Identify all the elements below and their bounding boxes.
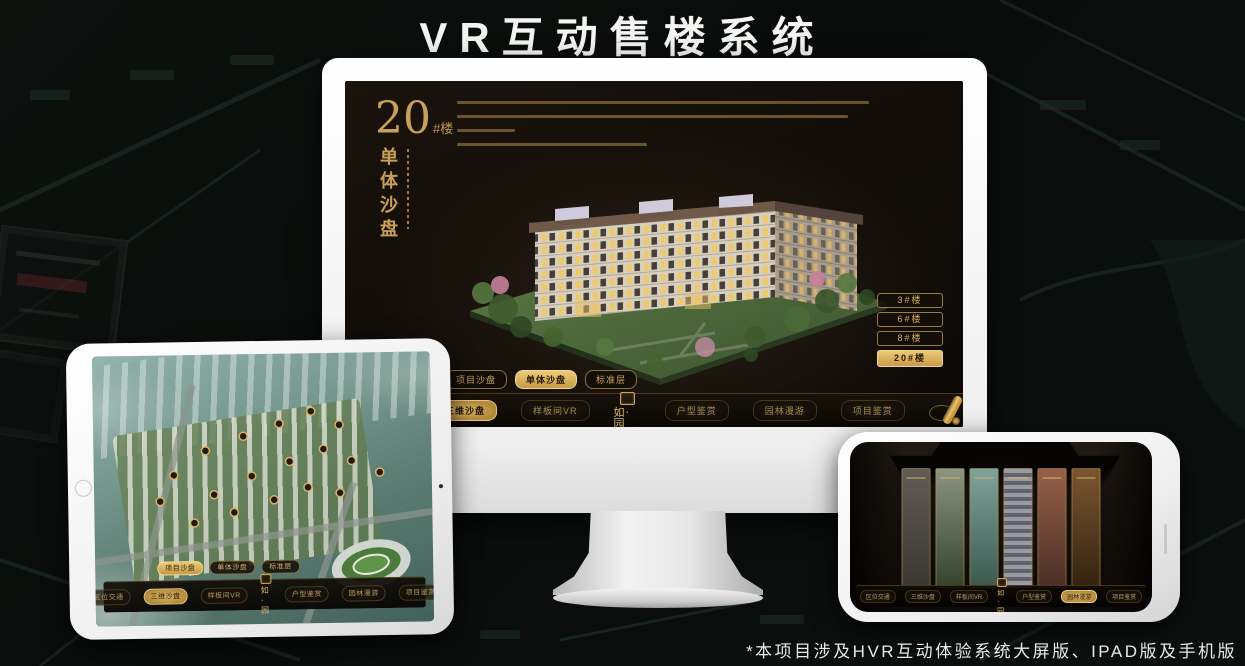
home-button[interactable]: [75, 480, 92, 497]
building-number: 20: [375, 93, 431, 144]
phone-screen: 区位交通 三维沙盘 样板间VR 如·园 户型鉴赏 园林漫游 项目鉴赏: [850, 442, 1152, 612]
tablet-logo[interactable]: 如·园: [260, 574, 272, 616]
seal-icon: [620, 392, 635, 405]
logo-text: 如·园: [261, 585, 272, 616]
tablet-tab-project-sandtable[interactable]: 项目沙盘: [157, 561, 203, 576]
tablet-tab-standard-floor[interactable]: 标准层: [261, 559, 300, 574]
logo-text: 如·园: [614, 407, 641, 427]
monitor-stand-base: [553, 588, 763, 608]
panel-card-elevation[interactable]: [1004, 468, 1033, 588]
description-paragraph: [457, 101, 869, 146]
nav-item-floorplans[interactable]: 户型鉴赏: [665, 400, 729, 421]
tablet-navbar: 区位交通 三维沙盘 样板间VR 如·园 户型鉴赏 园林漫游 项目鉴赏: [103, 576, 425, 612]
panel-card-interior[interactable]: [902, 468, 931, 588]
camera-dot: [439, 484, 443, 488]
nav-item-project-gallery[interactable]: 项目鉴赏: [841, 400, 905, 421]
tablet-nav-showroom-vr[interactable]: 样板间VR: [200, 587, 247, 604]
footnote: *本项目涉及HVR互动体验系统大屏版、IPAD版及手机版: [746, 637, 1237, 662]
page-title: VR互动售楼系统: [0, 4, 1245, 65]
tablet-sub-tabs: 项目沙盘 单体沙盘 标准层: [157, 559, 300, 575]
scroll-handle-icon[interactable]: [929, 397, 963, 425]
project-logo[interactable]: 如·园: [614, 392, 641, 427]
floor-button-6[interactable]: 6#楼: [877, 312, 943, 327]
building-render: [455, 151, 895, 386]
poster-stage: VR互动售楼系统 20#楼 单体沙盘: [0, 0, 1245, 666]
seal-icon: [260, 574, 271, 584]
tablet-nav-floorplans[interactable]: 户型鉴赏: [285, 586, 329, 603]
phone-logo[interactable]: 如·园: [997, 578, 1007, 613]
panel-card-aerial[interactable]: [970, 468, 999, 588]
phone-nav-showroom-vr[interactable]: 样板间VR: [950, 590, 988, 603]
floor-button-group: 3#楼 6#楼 8#楼 20#楼: [877, 293, 943, 371]
floor-button-8[interactable]: 8#楼: [877, 331, 943, 346]
tablet-nav-project-gallery[interactable]: 项目鉴赏: [399, 584, 434, 601]
tablet-nav-3d-sandtable[interactable]: 三维沙盘: [143, 588, 187, 605]
panel-strip: [902, 468, 1101, 588]
building-number-suffix: #楼: [433, 121, 453, 136]
phone-side-notch: [1164, 524, 1167, 554]
tablet-device: 项目沙盘 单体沙盘 标准层 区位交通 三维沙盘 样板间VR 如·园 户型鉴赏 园…: [66, 338, 455, 640]
tablet-tab-single-sandtable[interactable]: 单体沙盘: [209, 560, 255, 575]
phone-nav-project-gallery[interactable]: 项目鉴赏: [1106, 590, 1142, 603]
panel-card-courtyard[interactable]: [936, 468, 965, 588]
tablet-nav-garden-roam[interactable]: 园林漫游: [342, 585, 386, 602]
phone-nav-garden-roam[interactable]: 园林漫游: [1061, 590, 1097, 603]
building-headline: 20#楼 单体沙盘: [375, 97, 453, 243]
tablet-nav-location[interactable]: 区位交通: [92, 589, 131, 606]
phone-device: 区位交通 三维沙盘 样板间VR 如·园 户型鉴赏 园林漫游 项目鉴赏: [838, 432, 1180, 622]
tab-single-sandtable[interactable]: 单体沙盘: [515, 370, 577, 389]
tab-project-sandtable[interactable]: 项目沙盘: [445, 370, 507, 389]
phone-nav-3d-sandtable[interactable]: 三维沙盘: [905, 590, 941, 603]
seal-icon: [997, 578, 1007, 587]
sandtable-sub-tabs: 项目沙盘 单体沙盘 标准层: [445, 370, 637, 389]
building-subtitle: 单体沙盘: [375, 147, 401, 243]
certificate-plaque: [0, 225, 129, 356]
tab-standard-floor[interactable]: 标准层: [585, 370, 637, 389]
panel-card-autumn[interactable]: [1038, 468, 1067, 588]
phone-nav-floorplans[interactable]: 户型鉴赏: [1016, 590, 1052, 603]
nav-item-showroom-vr[interactable]: 样板间VR: [521, 400, 590, 421]
logo-text: 如·园: [997, 588, 1007, 613]
phone-nav-location[interactable]: 区位交通: [860, 590, 896, 603]
tablet-screen: 项目沙盘 单体沙盘 标准层 区位交通 三维沙盘 样板间VR 如·园 户型鉴赏 园…: [92, 351, 434, 626]
panel-card-study[interactable]: [1072, 468, 1101, 588]
floor-button-20[interactable]: 20#楼: [877, 350, 943, 367]
phone-navbar: 区位交通 三维沙盘 样板间VR 如·园 户型鉴赏 园林漫游 项目鉴赏: [856, 585, 1146, 607]
floor-button-3[interactable]: 3#楼: [877, 293, 943, 308]
nav-item-garden-roam[interactable]: 园林漫游: [753, 400, 817, 421]
decor-vertical-line: [407, 149, 409, 229]
